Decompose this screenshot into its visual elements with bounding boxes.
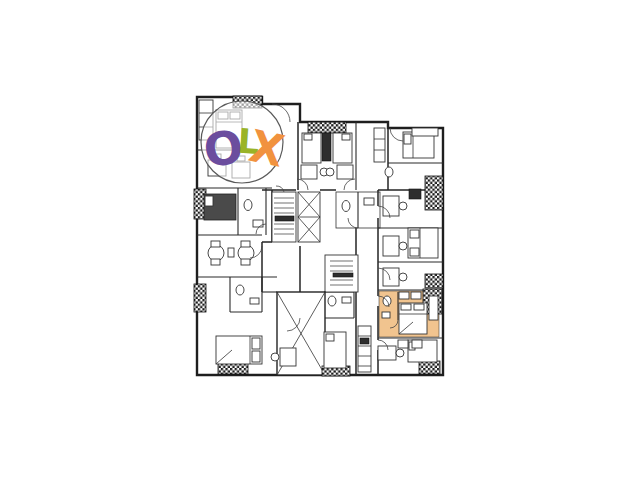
sink-icon bbox=[250, 298, 259, 304]
bed-symbol bbox=[324, 332, 346, 368]
toilet-icon bbox=[328, 296, 336, 306]
listing-photo-floorplan: O L X bbox=[0, 0, 640, 480]
wardrobe-symbol bbox=[374, 128, 385, 162]
bed-symbol bbox=[333, 133, 352, 163]
staircase-upper bbox=[272, 186, 296, 242]
sink-icon bbox=[253, 220, 263, 227]
bed-symbol bbox=[216, 336, 262, 364]
floorplan-svg: O L X bbox=[0, 0, 640, 480]
desk-symbol bbox=[271, 348, 296, 366]
dining-table-symbol bbox=[208, 241, 254, 265]
core-bathrooms bbox=[336, 192, 380, 228]
bed-symbol bbox=[408, 228, 438, 258]
toilet-icon bbox=[244, 200, 252, 211]
toilet-icon bbox=[385, 167, 393, 177]
stair-door-arc bbox=[276, 186, 284, 192]
toilet-icon bbox=[342, 201, 350, 212]
toilet-icon bbox=[236, 285, 244, 295]
sink-icon bbox=[382, 312, 390, 318]
bed-symbol bbox=[302, 133, 321, 163]
kitchen-column bbox=[358, 326, 371, 372]
desk-symbol bbox=[301, 165, 353, 179]
sink-icon bbox=[342, 297, 351, 303]
staircase-lower bbox=[325, 255, 358, 292]
olx-watermark: O L X bbox=[200, 101, 289, 183]
elevator-shafts bbox=[298, 192, 320, 242]
bed-symbol bbox=[204, 194, 236, 220]
sink-icon bbox=[364, 198, 374, 205]
